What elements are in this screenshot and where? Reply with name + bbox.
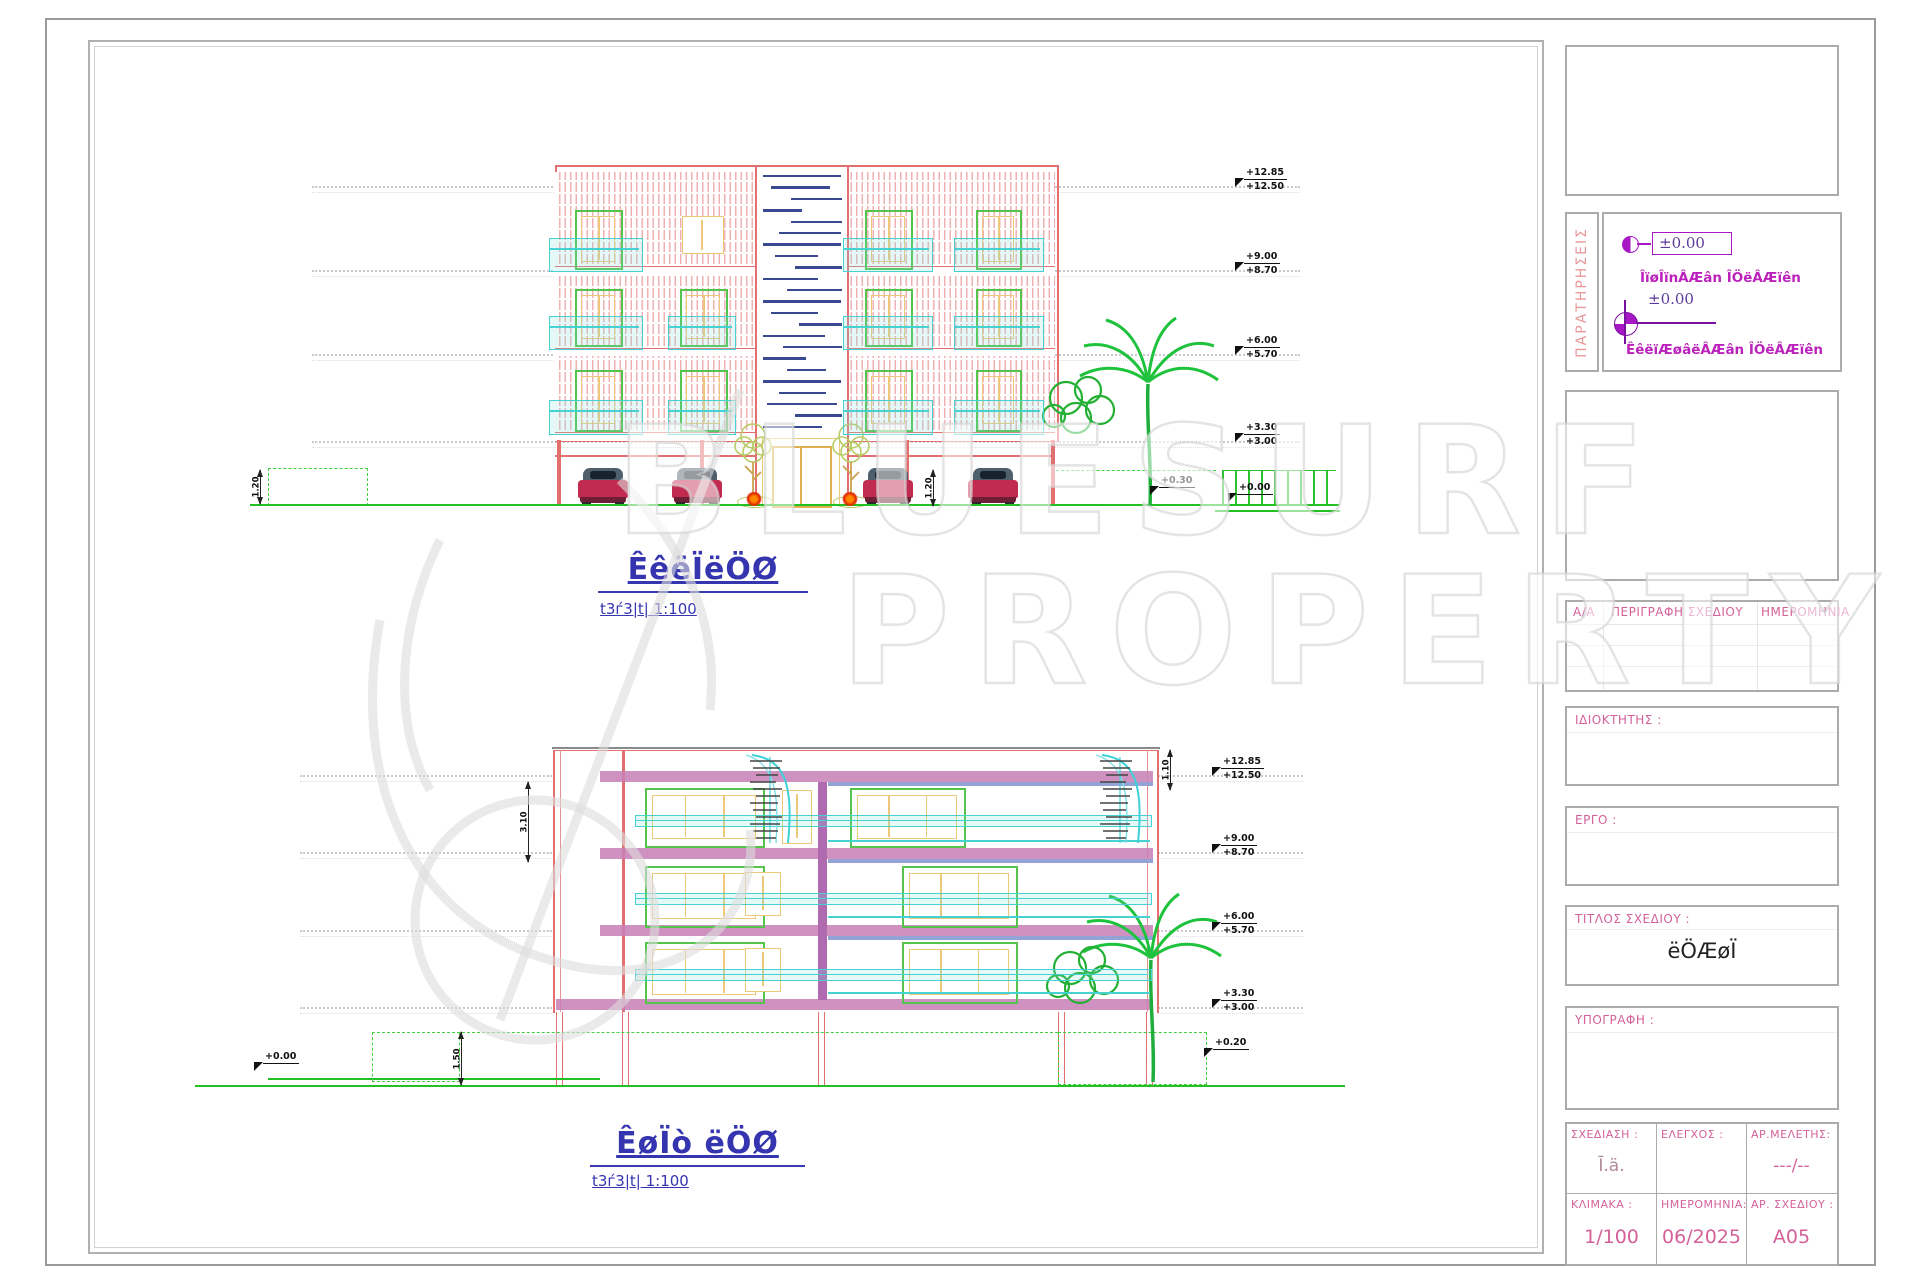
glass-block-line <box>763 209 802 211</box>
glass-block-line <box>763 243 841 245</box>
dimension-line: 3.10 <box>528 782 529 862</box>
car-body <box>672 480 722 498</box>
floor-slab <box>600 771 1153 782</box>
glass-block-line <box>795 414 842 416</box>
level-values: +6.00+5.70 <box>1244 335 1280 360</box>
spiral-staircase <box>742 753 798 845</box>
level-upper-value: +12.85 <box>1221 756 1264 769</box>
balcony-railing <box>954 316 1044 350</box>
glass-block-line <box>771 312 818 314</box>
datum-value-1: ±0.00 <box>1652 232 1732 255</box>
datum-symbol-1: ±0.00 <box>1622 232 1822 256</box>
parked-car <box>578 468 628 506</box>
railing-rail <box>844 248 929 250</box>
revision-hline <box>1567 645 1837 646</box>
level-marker: +3.30+3.00 <box>1235 422 1280 447</box>
study-number-label: ΑΡ.ΜΕΛΕΤΗΣ: <box>1747 1124 1831 1141</box>
section-railing <box>635 969 1152 981</box>
revision-col-aa: Α/Α <box>1567 602 1595 619</box>
parked-car <box>672 468 722 506</box>
balcony-railing <box>549 400 643 435</box>
cyan-slab-line <box>828 992 1150 994</box>
dimension-line: 1.20 <box>933 470 934 506</box>
balcony-railing <box>954 238 1044 272</box>
glass-block-line <box>771 186 830 188</box>
level-dotted-line <box>300 858 552 859</box>
glass-block-line <box>767 403 837 405</box>
slab-underlay <box>828 859 1153 863</box>
cyan-slab-line <box>828 916 1150 918</box>
ground-line-lower <box>1215 510 1340 512</box>
level-upper-value: +3.30 <box>1244 422 1280 435</box>
revision-vline <box>1757 602 1758 690</box>
level-marker: +12.85+12.50 <box>1235 167 1287 192</box>
balcony-railing <box>954 400 1044 435</box>
ground-line <box>195 1085 1345 1087</box>
dimension-value: 1.10 <box>1161 760 1171 781</box>
glass-block-line <box>791 198 842 200</box>
railing-rail <box>844 410 929 412</box>
signature-divider <box>1567 1032 1837 1033</box>
pilotis-column <box>557 440 561 504</box>
level-upper-value: +9.00 <box>1221 833 1257 846</box>
revision-header-row: Α/Α ΠΕΡΙΓΡΑΦΗ ΣΧΕΔΙΟΥ ΗΜΕΡΟΜΗΝΙΑ <box>1567 602 1837 625</box>
flower-bush <box>841 492 859 506</box>
glass-block-line <box>787 289 842 291</box>
level-upper-value: +0.20 <box>1213 1037 1249 1050</box>
level-marker: +0.00 <box>1228 482 1273 502</box>
car-body <box>863 480 913 498</box>
glass-block-line <box>779 392 826 394</box>
signature-label: ΥΠΟΓΡΑΦΗ : <box>1567 1008 1837 1027</box>
level-marker: +0.20 <box>1204 1037 1249 1057</box>
level-dotted-line <box>300 930 552 932</box>
level-dotted-line <box>300 781 552 782</box>
parapet-dashes <box>462 1032 1058 1033</box>
section-elevation-scale: t3ѓ3|t| 1:100 <box>592 1172 689 1190</box>
note-text-2: ÊêëïÆøâëÂÆân ÎÖëÂÆïên <box>1626 342 1823 358</box>
car-window <box>684 471 710 479</box>
level-marker: +9.00+8.70 <box>1235 251 1280 276</box>
level-values: +0.00 <box>1237 482 1273 495</box>
level-marker: +6.00+5.70 <box>1235 335 1280 360</box>
front-elevation-title: ÊêëÏëÖØ <box>598 552 808 593</box>
balcony-railing <box>549 316 643 350</box>
balcony-railing <box>843 400 933 435</box>
level-marker: +6.00+5.70 <box>1212 911 1257 936</box>
level-lower-value: +8.70 <box>1221 846 1257 858</box>
door-mullion <box>800 448 802 506</box>
drawing-title-label: ΤΙΤΛΟΣ ΣΧΕΔΙΟΥ : <box>1567 907 1837 926</box>
section-railing <box>635 893 1152 905</box>
drawing-number-value: A05 <box>1747 1226 1836 1248</box>
owner-label: ΙΔΙΟΚΤΗΤΗΣ : <box>1567 708 1837 727</box>
level-upper-value: +0.30 <box>1159 475 1195 488</box>
glass-block-line <box>799 323 842 325</box>
flower-bush <box>745 492 763 506</box>
dimension-value: 3.10 <box>519 812 529 833</box>
level-marker: +0.30 <box>1150 475 1195 495</box>
level-flag-icon <box>1235 433 1244 442</box>
datum-staff <box>1624 300 1626 344</box>
project-divider <box>1567 832 1837 833</box>
level-flag-icon <box>1212 844 1221 853</box>
title-block-empty-box-1 <box>1565 45 1839 196</box>
car-body <box>578 480 628 498</box>
dimension-line: 1.10 <box>1170 750 1171 790</box>
project-box: ΕΡΓΟ : <box>1565 806 1839 886</box>
level-values: +0.30 <box>1159 475 1195 488</box>
boundary-wall-dashed <box>268 468 368 506</box>
level-marker: +12.85+12.50 <box>1212 756 1264 781</box>
level-flag-icon <box>1235 178 1244 187</box>
level-values: +0.00 <box>263 1051 299 1064</box>
revision-table: Α/Α ΠΕΡΙΓΡΑΦΗ ΣΧΕΔΙΟΥ ΗΜΕΡΟΜΗΝΙΑ <box>1565 600 1839 692</box>
level-upper-value: +0.00 <box>1237 482 1273 495</box>
leafy-tree <box>1036 368 1126 448</box>
level-flag-icon <box>1212 767 1221 776</box>
datum-value-2: ±0.00 <box>1648 290 1694 308</box>
car-window <box>875 471 901 479</box>
level-flag-icon <box>254 1062 263 1071</box>
datum-circle-icon <box>1614 312 1638 336</box>
pilotis-column <box>556 1012 563 1085</box>
level-dotted-line <box>300 1013 552 1014</box>
glass-block-line <box>787 369 826 371</box>
level-dotted-line <box>300 775 552 777</box>
railing-rail <box>550 326 639 328</box>
level-upper-value: +6.00 <box>1221 911 1257 924</box>
glass-block-line <box>795 266 842 268</box>
date-value: 06/2025 <box>1657 1226 1746 1248</box>
title-block-empty-box-2 <box>1565 390 1839 581</box>
level-dotted-line <box>300 1007 552 1009</box>
car-body <box>968 480 1018 498</box>
notes-title: ΠΑΡΑΤΗΡΗΣΕΙΣ <box>1574 227 1590 358</box>
scale-value: 1/100 <box>1567 1226 1656 1248</box>
dimension-value: 1.50 <box>452 1048 462 1069</box>
parked-car <box>968 468 1018 506</box>
balcony-railing <box>843 316 933 350</box>
section-elevation-title: ÊøÏò ëÖØ <box>590 1126 805 1167</box>
level-upper-value: +12.85 <box>1244 167 1287 180</box>
level-flag-icon <box>1228 493 1237 502</box>
pilotis-column <box>818 1012 825 1085</box>
signature-box: ΥΠΟΓΡΑΦΗ : <box>1565 1006 1839 1110</box>
balcony-railing <box>668 316 736 350</box>
level-flag-icon <box>1212 922 1221 931</box>
level-dotted-line <box>1158 781 1303 782</box>
check-label: ΕΛΕΓΧΟΣ : <box>1657 1124 1723 1141</box>
balcony-railing <box>843 238 933 272</box>
revision-vline <box>1603 602 1604 690</box>
dimension-value: 1.20 <box>251 477 261 498</box>
level-values: +9.00+8.70 <box>1244 251 1280 276</box>
study-number-value: ---/-- <box>1747 1156 1836 1176</box>
level-flag-icon <box>1204 1048 1213 1057</box>
floor-slab <box>600 848 1153 859</box>
interior-column <box>622 750 625 1012</box>
level-values: +6.00+5.70 <box>1221 911 1257 936</box>
glass-block-line <box>775 255 818 257</box>
front-elevation-scale: t3ѓ3|t| 1:100 <box>600 600 697 618</box>
notes-title-strip: ΠΑΡΑΤΗΡΗΣΕΙΣ <box>1565 212 1599 372</box>
title-underline <box>598 591 808 593</box>
revision-col-date: ΗΜΕΡΟΜΗΝΙΑ <box>1759 602 1850 619</box>
glass-block-line <box>763 300 841 302</box>
roof-structure-dashed <box>372 1032 460 1082</box>
design-value: Ī.ä. <box>1567 1156 1656 1176</box>
section-elevation-title-text: ÊøÏò ëÖØ <box>616 1126 779 1161</box>
level-values: +3.30+3.00 <box>1244 422 1280 447</box>
datum-tail <box>1637 243 1651 245</box>
level-lower-value: +8.70 <box>1244 264 1280 276</box>
railing-rail <box>955 326 1040 328</box>
car-window <box>590 471 616 479</box>
railing-rail <box>669 326 732 328</box>
front-elevation-title-text: ÊêëÏëÖØ <box>628 552 779 587</box>
level-dotted-line <box>300 936 552 937</box>
railing-rail <box>669 410 732 412</box>
railing-rail <box>550 248 639 250</box>
level-lower-value: +5.70 <box>1221 924 1257 936</box>
level-lower-value: +5.70 <box>1244 348 1280 360</box>
railing-rail <box>844 326 929 328</box>
level-lower-value: +12.50 <box>1244 180 1287 192</box>
level-flag-icon <box>1212 999 1221 1008</box>
glass-block-line <box>783 346 842 348</box>
scale-label: ΚΛΙΜΑΚΑ : <box>1567 1194 1632 1211</box>
design-label: ΣΧΕΔΙΑΣΗ : <box>1567 1124 1638 1141</box>
balcony-railing <box>668 400 736 435</box>
glass-block-line <box>763 357 806 359</box>
note-text-1: ÎïøÎïnÂÆân ÎÖëÂÆïên <box>1640 270 1801 286</box>
glass-block-line <box>763 175 841 177</box>
revision-col-desc: ΠΕΡΙΓΡΑΦΗ ΣΧΕΔΙΟΥ <box>1605 602 1743 619</box>
sheet-info-table: ΣΧΕΔΙΑΣΗ : Ī.ä. ΕΛΕΓΧΟΣ : ΑΡ.ΜΕΛΕΤΗΣ: --… <box>1565 1122 1839 1266</box>
glass-block-line <box>779 232 841 234</box>
revision-hline <box>1567 666 1837 667</box>
level-marker: +3.30+3.00 <box>1212 988 1257 1013</box>
level-lower-value: +3.00 <box>1221 1001 1257 1013</box>
glass-block-line <box>763 278 818 280</box>
level-values: +9.00+8.70 <box>1221 833 1257 858</box>
entrance-door <box>772 446 832 508</box>
level-dotted-line <box>300 852 552 854</box>
glass-block-line <box>763 335 825 337</box>
roof-top-line <box>552 747 1160 749</box>
pilotis-column <box>622 1012 629 1085</box>
datum-tail <box>1636 322 1716 324</box>
level-flag-icon <box>1235 346 1244 355</box>
level-values: +3.30+3.00 <box>1221 988 1257 1013</box>
drawing-title-value: ëÖÆøÏ <box>1567 939 1837 963</box>
datum-symbol-2: ±0.00 <box>1610 290 1820 330</box>
parked-car <box>863 468 913 506</box>
level-values: +12.85+12.50 <box>1244 167 1287 192</box>
level-flag-icon <box>1235 262 1244 271</box>
railing-rail <box>636 974 1148 975</box>
window-mullion <box>701 220 703 250</box>
spiral-staircase <box>1092 753 1148 845</box>
notes-box: ±0.00 ÎïøÎïnÂÆân ÎÖëÂÆïên ±0.00 ÊêëïÆøâë… <box>1602 212 1842 372</box>
level-marker: +0.00 <box>254 1051 299 1071</box>
title-underline <box>590 1165 805 1167</box>
dimension-value: 1.20 <box>924 478 934 499</box>
level-lower-value: +12.50 <box>1221 769 1264 781</box>
section-railing <box>635 815 1152 827</box>
railing-rail <box>955 410 1040 412</box>
level-upper-value: +9.00 <box>1244 251 1280 264</box>
glass-block-line <box>791 221 842 223</box>
balcony-railing <box>549 238 643 272</box>
pilotis-column <box>1051 440 1055 504</box>
level-lower-value: +3.00 <box>1244 435 1280 447</box>
level-flag-icon <box>1150 486 1159 495</box>
project-label: ΕΡΓΟ : <box>1567 808 1837 827</box>
car-window <box>980 471 1006 479</box>
level-upper-value: +0.00 <box>263 1051 299 1064</box>
drawing-title-divider <box>1567 929 1837 930</box>
owner-box: ΙΔΙΟΚΤΗΤΗΣ : <box>1565 706 1839 786</box>
owner-divider <box>1567 732 1837 733</box>
level-upper-value: +3.30 <box>1221 988 1257 1001</box>
level-upper-value: +6.00 <box>1244 335 1280 348</box>
small-window <box>682 216 724 254</box>
level-values: +12.85+12.50 <box>1221 756 1264 781</box>
level-values: +0.20 <box>1213 1037 1249 1050</box>
glass-block-line <box>763 380 841 382</box>
drawing-number-label: ΑΡ. ΣΧΕΔΙΟΥ : <box>1747 1194 1833 1211</box>
drawing-sheet: ÊêëÏëÖØ t3ѓ3|t| 1:100 ÊøÏò ëÖØ t3ѓ3|t| 1… <box>0 0 1920 1280</box>
railing-rail <box>636 898 1148 899</box>
date-label: ΗΜΕΡΟΜΗΝΙΑ: <box>1657 1194 1747 1211</box>
railing-rail <box>550 410 639 412</box>
drawing-title-box: ΤΙΤΛΟΣ ΣΧΕΔΙΟΥ : ëÖÆøÏ <box>1565 905 1839 986</box>
dimension-line: 1.20 <box>260 470 261 504</box>
dimension-line: 1.50 <box>461 1032 462 1085</box>
level-marker: +9.00+8.70 <box>1212 833 1257 858</box>
railing-rail <box>636 820 1148 821</box>
railing-rail <box>955 248 1040 250</box>
level-dotted-line <box>1158 858 1303 859</box>
section-frame-inner-left <box>560 750 561 1012</box>
